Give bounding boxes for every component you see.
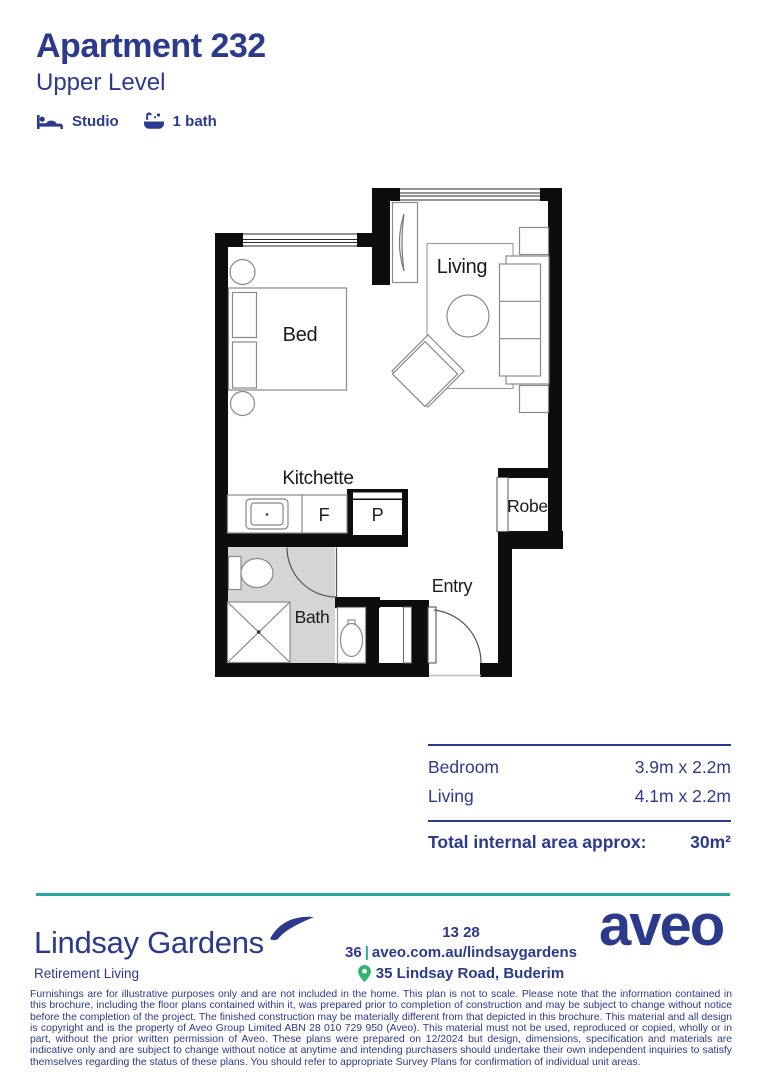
header: Apartment 232 Upper Level Studio 1 bat [36, 28, 266, 131]
lindsay-gardens-logo: Lindsay Gardens Retirement Living [34, 927, 264, 981]
pillow [233, 293, 257, 338]
row-label: Bedroom [428, 757, 499, 778]
entry-door [428, 607, 481, 676]
toilet [229, 557, 274, 590]
living-window [400, 188, 540, 201]
leaf-icon [268, 915, 316, 946]
room-label-bath: Bath [295, 607, 330, 627]
total-area-row: Total internal area approx: 30m² [428, 822, 731, 853]
community-name: Lindsay Gardens [34, 927, 264, 958]
address-text: 35 Lindsay Road, Buderim [376, 964, 564, 984]
room-label-entry: Entry [432, 576, 473, 596]
contact-block: 13 28 36|aveo.com.au/lindsaygardens 35 L… [330, 923, 592, 988]
floorplan: Living Bed Kitchette F P Robe Bath Entry [200, 170, 580, 690]
room-label-living: Living [437, 256, 487, 278]
address-line: 35 Lindsay Road, Buderim [358, 964, 564, 984]
feature-label: Studio [72, 113, 119, 130]
tv-unit [393, 203, 418, 283]
total-value: 30m² [690, 832, 731, 853]
bedroom-window [243, 233, 357, 247]
phone-website-line: 13 28 36|aveo.com.au/lindsaygardens [330, 923, 592, 964]
disclaimer-text: Furnishings are for illustrative purpose… [30, 989, 732, 1068]
dimension-rows: Bedroom 3.9m x 2.2m Living 4.1m x 2.2m [428, 744, 731, 822]
room-label-robe: Robe [507, 496, 548, 516]
round-table [447, 295, 489, 337]
armchair [392, 335, 464, 407]
basin [338, 608, 366, 664]
page-subtitle: Upper Level [36, 69, 266, 97]
bed-icon [36, 112, 64, 130]
sofa [500, 228, 550, 413]
page-title: Apartment 232 [36, 28, 266, 65]
row-value: 4.1m x 2.2m [635, 786, 731, 807]
feature-studio: Studio [36, 112, 119, 130]
sofa-armrest [520, 228, 549, 255]
closet-door [404, 607, 412, 663]
feature-list: Studio 1 bath [36, 111, 266, 131]
room-label-bed: Bed [283, 324, 318, 346]
bath-icon [143, 111, 165, 131]
label-fridge: F [319, 505, 330, 525]
row-label: Living [428, 786, 474, 807]
sofa-armrest [520, 386, 549, 413]
nightstand [231, 392, 255, 416]
dimensions-table: Bedroom 3.9m x 2.2m Living 4.1m x 2.2m T… [428, 744, 731, 853]
website-url[interactable]: aveo.com.au/lindsaygardens [372, 944, 577, 961]
feature-bath: 1 bath [143, 111, 217, 131]
room-label-kitchenette: Kitchette [282, 468, 353, 489]
living-furniture [392, 203, 549, 413]
table-row: Bedroom 3.9m x 2.2m [428, 753, 731, 782]
separator: | [362, 944, 372, 961]
nightstand [230, 260, 255, 285]
label-pantry: P [372, 505, 384, 525]
aveo-logo: aveo [599, 897, 723, 955]
total-label: Total internal area approx: [428, 832, 646, 853]
pillow [233, 342, 257, 388]
entry-closet [404, 607, 412, 663]
feature-label: 1 bath [173, 113, 217, 130]
community-tagline: Retirement Living [34, 966, 264, 981]
shower [228, 602, 291, 663]
table-row: Living 4.1m x 2.2m [428, 782, 731, 811]
brochure-page: { "header": { "title": "Apartment 232", … [0, 0, 764, 1080]
location-pin-icon [358, 965, 371, 982]
row-value: 3.9m x 2.2m [635, 757, 731, 778]
